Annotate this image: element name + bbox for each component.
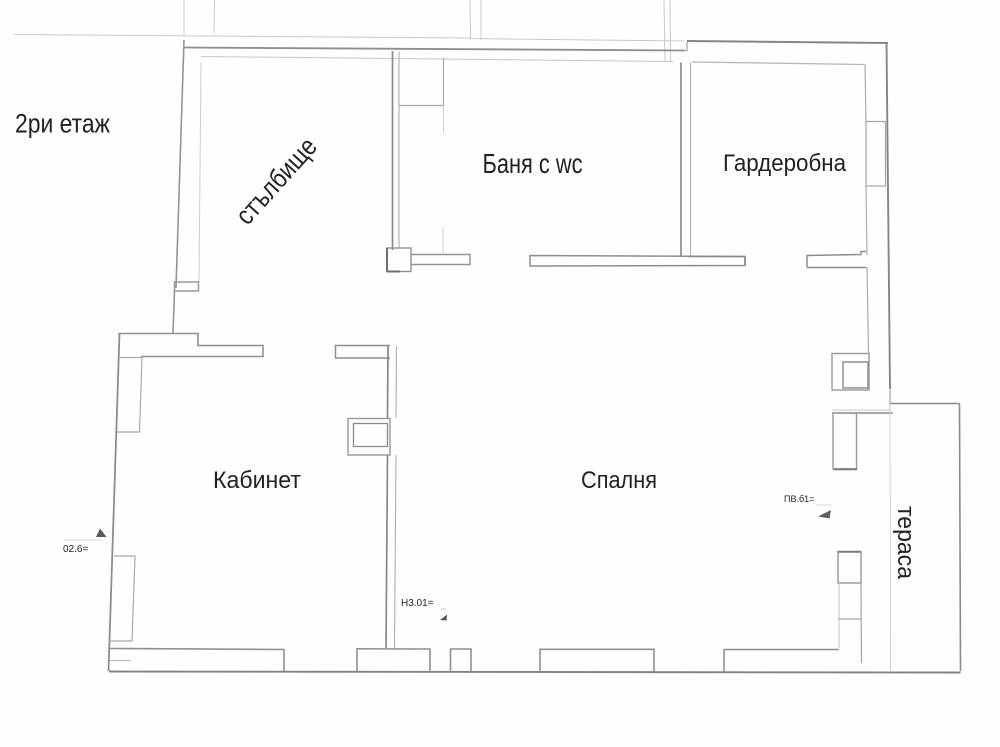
svg-text:Спалня: Спалня [581, 467, 657, 494]
svg-text:02.6=: 02.6= [63, 544, 88, 555]
svg-text:тераса: тераса [892, 506, 919, 580]
svg-text:ПВ.б1=: ПВ.б1= [784, 494, 814, 504]
svg-text:Баня с wc: Баня с wc [483, 148, 583, 179]
svg-text:Н3.01=: Н3.01= [401, 598, 434, 609]
svg-text:Гардеробна: Гардеробна [723, 150, 847, 177]
svg-text:Кабинет: Кабинет [213, 467, 301, 494]
svg-text:2ри етаж: 2ри етаж [15, 108, 110, 138]
